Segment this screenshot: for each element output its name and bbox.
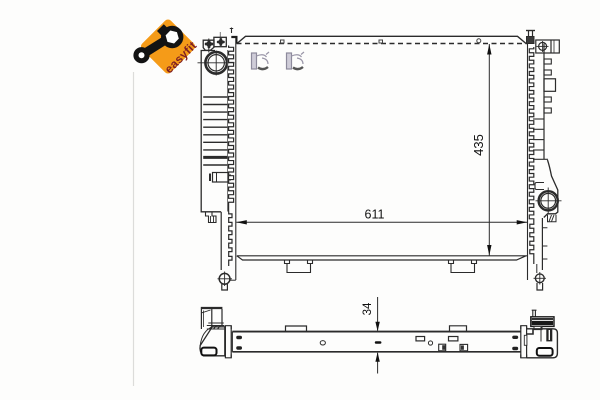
svg-text:34: 34	[362, 302, 374, 315]
svg-text:435: 435	[471, 134, 486, 156]
svg-text:611: 611	[365, 208, 385, 222]
